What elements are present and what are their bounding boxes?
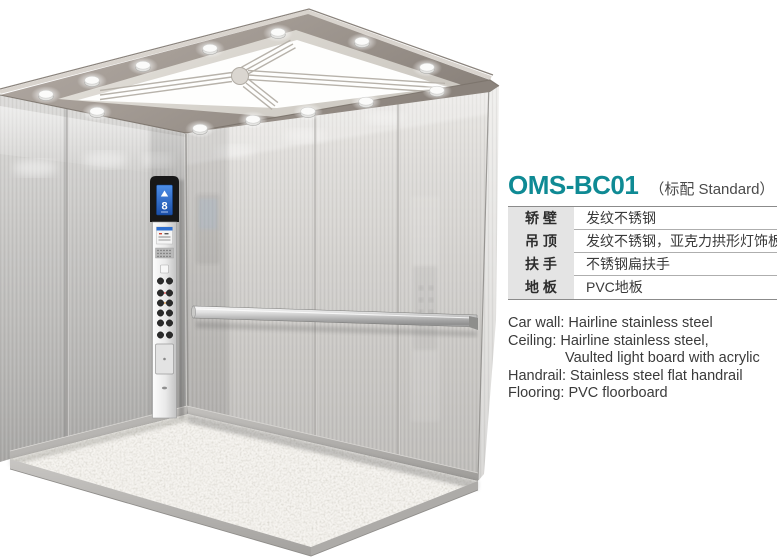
spec-line: Ceiling: Hairline stainless steel, — [508, 333, 760, 351]
spec-line: Vaulted light board with acrylic — [508, 350, 760, 368]
table-row: 地 板 PVC地板 — [508, 276, 777, 299]
spec-list-en: Car wall: Hairline stainless steel Ceili… — [508, 315, 760, 403]
spec-table-cn: 轿 壁 发纹不锈钢 吊 顶 发纹不锈钢，亚克力拱形灯饰板 扶 手 不锈钢扁扶手 … — [508, 206, 777, 300]
spec-value: 不锈钢扁扶手 — [574, 253, 777, 276]
spec-line: Handrail: Stainless steel flat handrail — [508, 368, 760, 386]
catalog-page: 8 — [0, 0, 780, 560]
spec-label: 吊 顶 — [508, 230, 574, 253]
spec-value: 发纹不锈钢 — [574, 207, 777, 230]
handrail-left-endcap — [192, 306, 196, 318]
spec-label: 扶 手 — [508, 253, 574, 276]
cross-center-cap — [232, 68, 249, 85]
model-name: OMS-BC01 — [508, 170, 638, 201]
cop-keyswitch — [162, 387, 167, 390]
table-row: 轿 壁 发纹不锈钢 — [508, 207, 777, 230]
spec-line: Car wall: Hairline stainless steel — [508, 315, 760, 333]
table-row: 吊 顶 发纹不锈钢，亚克力拱形灯饰板 — [508, 230, 777, 253]
table-row: 扶 手 不锈钢扁扶手 — [508, 253, 777, 276]
cop-alarm-button — [161, 265, 169, 273]
product-title-row: OMS-BC01 （标配 Standard） — [508, 170, 774, 201]
cop-floor-display: 8 — [157, 185, 173, 215]
elevator-render: 8 — [0, 0, 500, 560]
spec-value: PVC地板 — [574, 276, 777, 299]
spec-line: Flooring: PVC floorboard — [508, 385, 760, 403]
floor-number: 8 — [161, 201, 167, 213]
variant-label: （标配 Standard） — [649, 178, 774, 199]
cop-mini-display — [157, 227, 173, 244]
spec-label: 地 板 — [508, 276, 574, 299]
cop-speaker-grille — [156, 248, 174, 258]
cop-service-hatch — [156, 344, 174, 374]
spec-value: 发纹不锈钢，亚克力拱形灯饰板 — [574, 230, 777, 253]
spec-label: 轿 壁 — [508, 207, 574, 230]
